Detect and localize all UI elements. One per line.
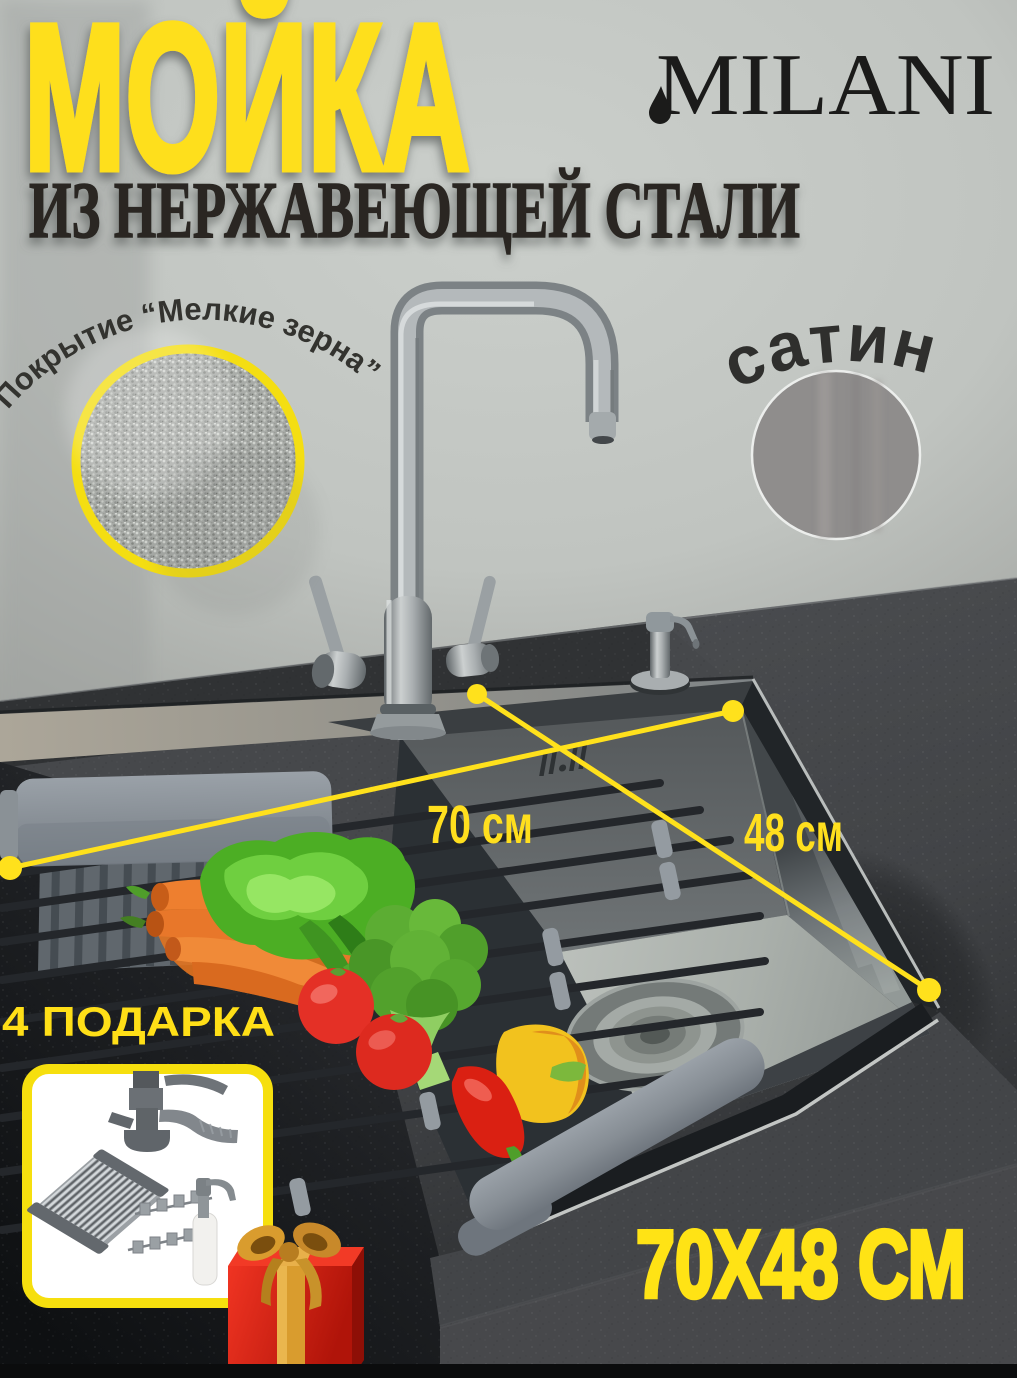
svg-text:48 см: 48 см bbox=[744, 803, 843, 863]
svg-text:70 см: 70 см bbox=[427, 795, 533, 855]
svg-text:MILANI: MILANI bbox=[656, 37, 995, 134]
svg-text:4 ПОДАРКА: 4 ПОДАРКА bbox=[2, 998, 275, 1045]
svg-text:ИЗ НЕРЖАВЕЮЩЕЙ СТАЛИ: ИЗ НЕРЖАВЕЮЩЕЙ СТАЛИ bbox=[29, 167, 800, 255]
svg-text:70X48 СМ: 70X48 СМ bbox=[636, 1211, 966, 1318]
